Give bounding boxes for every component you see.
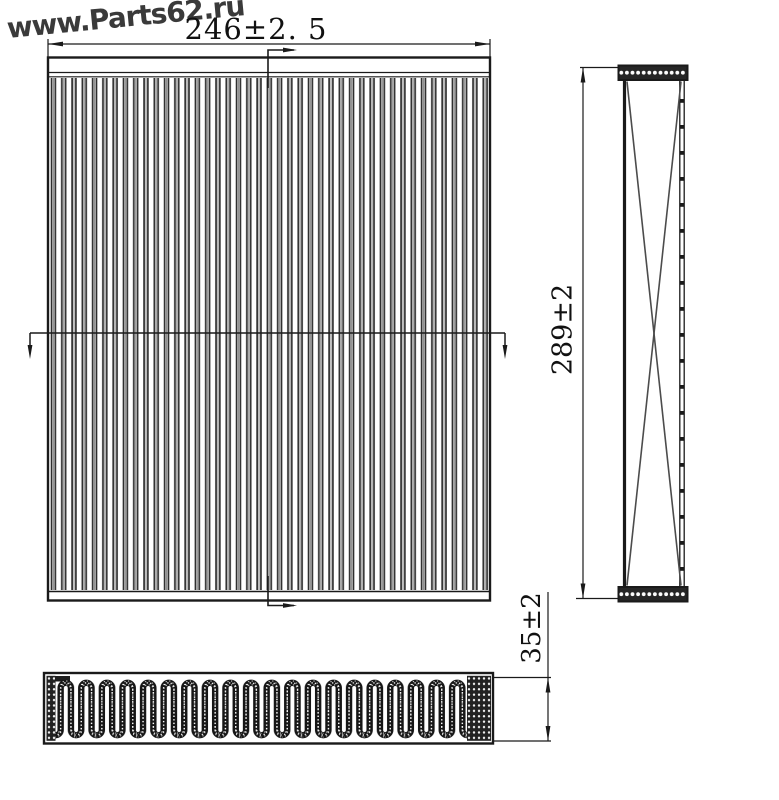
side-view-edge-ticks bbox=[680, 88, 684, 582]
arrow-down-icon bbox=[28, 345, 33, 359]
front-view bbox=[48, 58, 490, 601]
bottom-view-pleat-media bbox=[56, 678, 468, 741]
arrow-down-icon bbox=[546, 726, 551, 741]
side-view-top-cap bbox=[619, 66, 688, 81]
arrow-down-icon bbox=[503, 345, 508, 359]
width-dimension-label: 246±2. 5 bbox=[150, 12, 362, 46]
bottom-view bbox=[44, 673, 493, 744]
height-dimension-label: 289±2 bbox=[548, 258, 579, 402]
side-height-dimension bbox=[576, 68, 618, 599]
arrow-left-icon bbox=[48, 42, 63, 47]
drawing-canvas bbox=[0, 0, 779, 800]
bottom-view-right-block bbox=[467, 676, 491, 741]
thickness-dimension-label: 35±2 bbox=[517, 574, 547, 682]
arrow-right-icon bbox=[475, 42, 490, 47]
arrow-up-icon bbox=[581, 68, 586, 83]
front-view-pleats bbox=[50, 78, 488, 590]
side-view-bottom-cap bbox=[619, 587, 688, 602]
arrow-right-icon bbox=[283, 603, 297, 608]
arrow-right-icon bbox=[283, 48, 297, 53]
bottom-view-left-block bbox=[47, 676, 56, 741]
arrow-down-icon bbox=[581, 584, 586, 599]
side-view bbox=[619, 66, 688, 602]
technical-drawing: www.Parts62.ru 246±2. 5 289±2 35±2 bbox=[0, 0, 779, 800]
